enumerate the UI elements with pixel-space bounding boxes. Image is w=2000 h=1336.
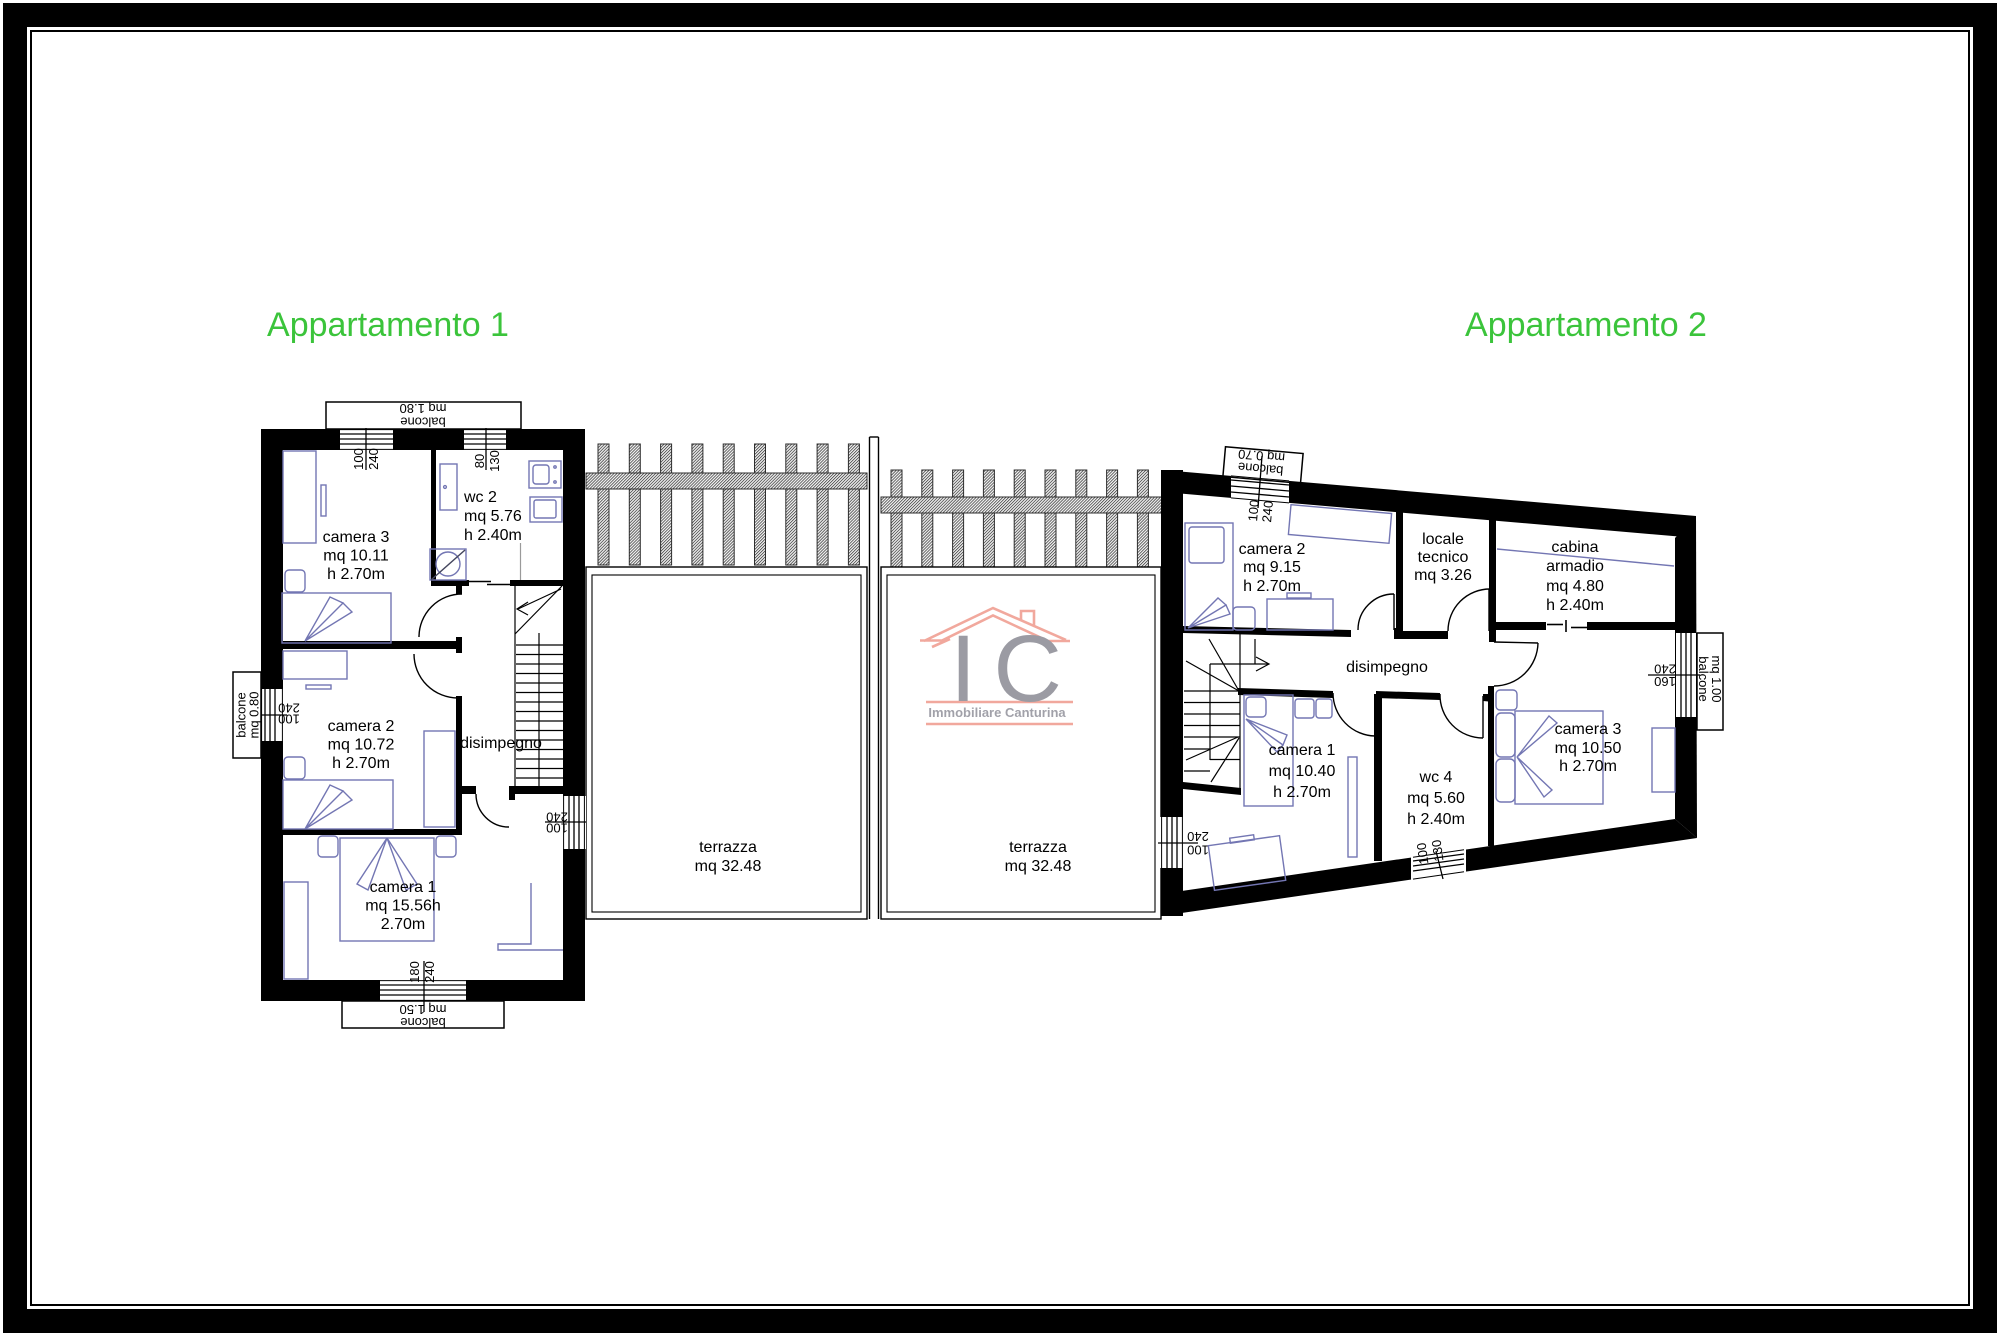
svg-text:disimpegno: disimpegno (460, 735, 542, 752)
svg-text:mq 32.48: mq 32.48 (1005, 858, 1072, 875)
svg-text:2.70m: 2.70m (381, 916, 425, 933)
svg-text:240: 240 (1259, 500, 1276, 523)
svg-text:Appartamento 2: Appartamento 2 (1465, 306, 1707, 344)
svg-text:mq 32.48: mq 32.48 (695, 858, 762, 875)
svg-text:160: 160 (1654, 674, 1676, 689)
svg-text:mq 10.11: mq 10.11 (323, 548, 389, 565)
svg-text:80: 80 (472, 454, 487, 468)
svg-text:h 2.70m: h 2.70m (1243, 578, 1301, 595)
svg-text:balcone: balcone (400, 1015, 446, 1030)
svg-text:240: 240 (422, 961, 437, 983)
svg-text:100: 100 (351, 448, 366, 470)
svg-text:h 2.70m: h 2.70m (327, 566, 385, 583)
svg-text:camera 2: camera 2 (1239, 541, 1306, 558)
svg-text:130: 130 (1429, 839, 1447, 863)
svg-text:mq 10.72: mq 10.72 (328, 737, 395, 754)
svg-text:mq 0.80: mq 0.80 (247, 692, 262, 739)
svg-text:camera 1: camera 1 (370, 879, 437, 896)
svg-text:terrazza: terrazza (1009, 839, 1067, 856)
svg-text:100: 100 (1187, 843, 1209, 858)
svg-text:180: 180 (407, 961, 422, 983)
svg-text:camera 2: camera 2 (328, 718, 395, 735)
svg-text:h 2.70m: h 2.70m (332, 755, 390, 772)
svg-text:mq 3.26: mq 3.26 (1414, 567, 1472, 584)
svg-text:mq 5.60: mq 5.60 (1407, 790, 1465, 807)
svg-text:mq 5.76: mq 5.76 (464, 508, 522, 525)
svg-text:locale: locale (1422, 531, 1464, 548)
svg-text:h 2.40m: h 2.40m (464, 527, 522, 544)
svg-text:h 2.40m: h 2.40m (1407, 811, 1465, 828)
svg-text:balcone: balcone (1696, 656, 1711, 702)
svg-text:100: 100 (278, 712, 300, 727)
svg-text:mq 1.00: mq 1.00 (1709, 656, 1724, 703)
svg-text:camera 3: camera 3 (323, 529, 390, 546)
svg-text:mq 10.40: mq 10.40 (1269, 763, 1336, 780)
svg-text:mq 9.15: mq 9.15 (1243, 559, 1301, 576)
svg-text:240: 240 (1187, 829, 1209, 844)
svg-text:camera 1: camera 1 (1269, 742, 1336, 759)
svg-text:disimpegno: disimpegno (1346, 659, 1428, 676)
svg-text:Appartamento 1: Appartamento 1 (267, 306, 509, 344)
svg-text:camera 3: camera 3 (1555, 721, 1622, 738)
svg-text:mq 4.80: mq 4.80 (1546, 578, 1604, 595)
svg-text:wc 4: wc 4 (1419, 769, 1453, 786)
svg-text:h 2.40m: h 2.40m (1546, 597, 1604, 614)
svg-text:mq 10.50: mq 10.50 (1555, 740, 1622, 757)
svg-text:mq 15.56h: mq 15.56h (365, 898, 441, 915)
svg-text:armadio: armadio (1546, 558, 1604, 575)
svg-text:cabina: cabina (1551, 539, 1598, 556)
svg-text:h 2.70m: h 2.70m (1559, 758, 1617, 775)
svg-text:240: 240 (366, 448, 381, 470)
svg-text:terrazza: terrazza (699, 839, 757, 856)
svg-text:130: 130 (487, 450, 502, 472)
svg-text:wc 2: wc 2 (463, 489, 497, 506)
svg-text:100: 100 (546, 821, 568, 836)
svg-text:balcone: balcone (400, 414, 446, 429)
svg-text:tecnico: tecnico (1418, 549, 1469, 566)
svg-text:mq 1.80: mq 1.80 (400, 401, 447, 416)
svg-text:Immobiliare Canturina: Immobiliare Canturina (928, 705, 1066, 720)
svg-text:h 2.70m: h 2.70m (1273, 784, 1331, 801)
svg-text:mq 1.50: mq 1.50 (400, 1002, 447, 1017)
